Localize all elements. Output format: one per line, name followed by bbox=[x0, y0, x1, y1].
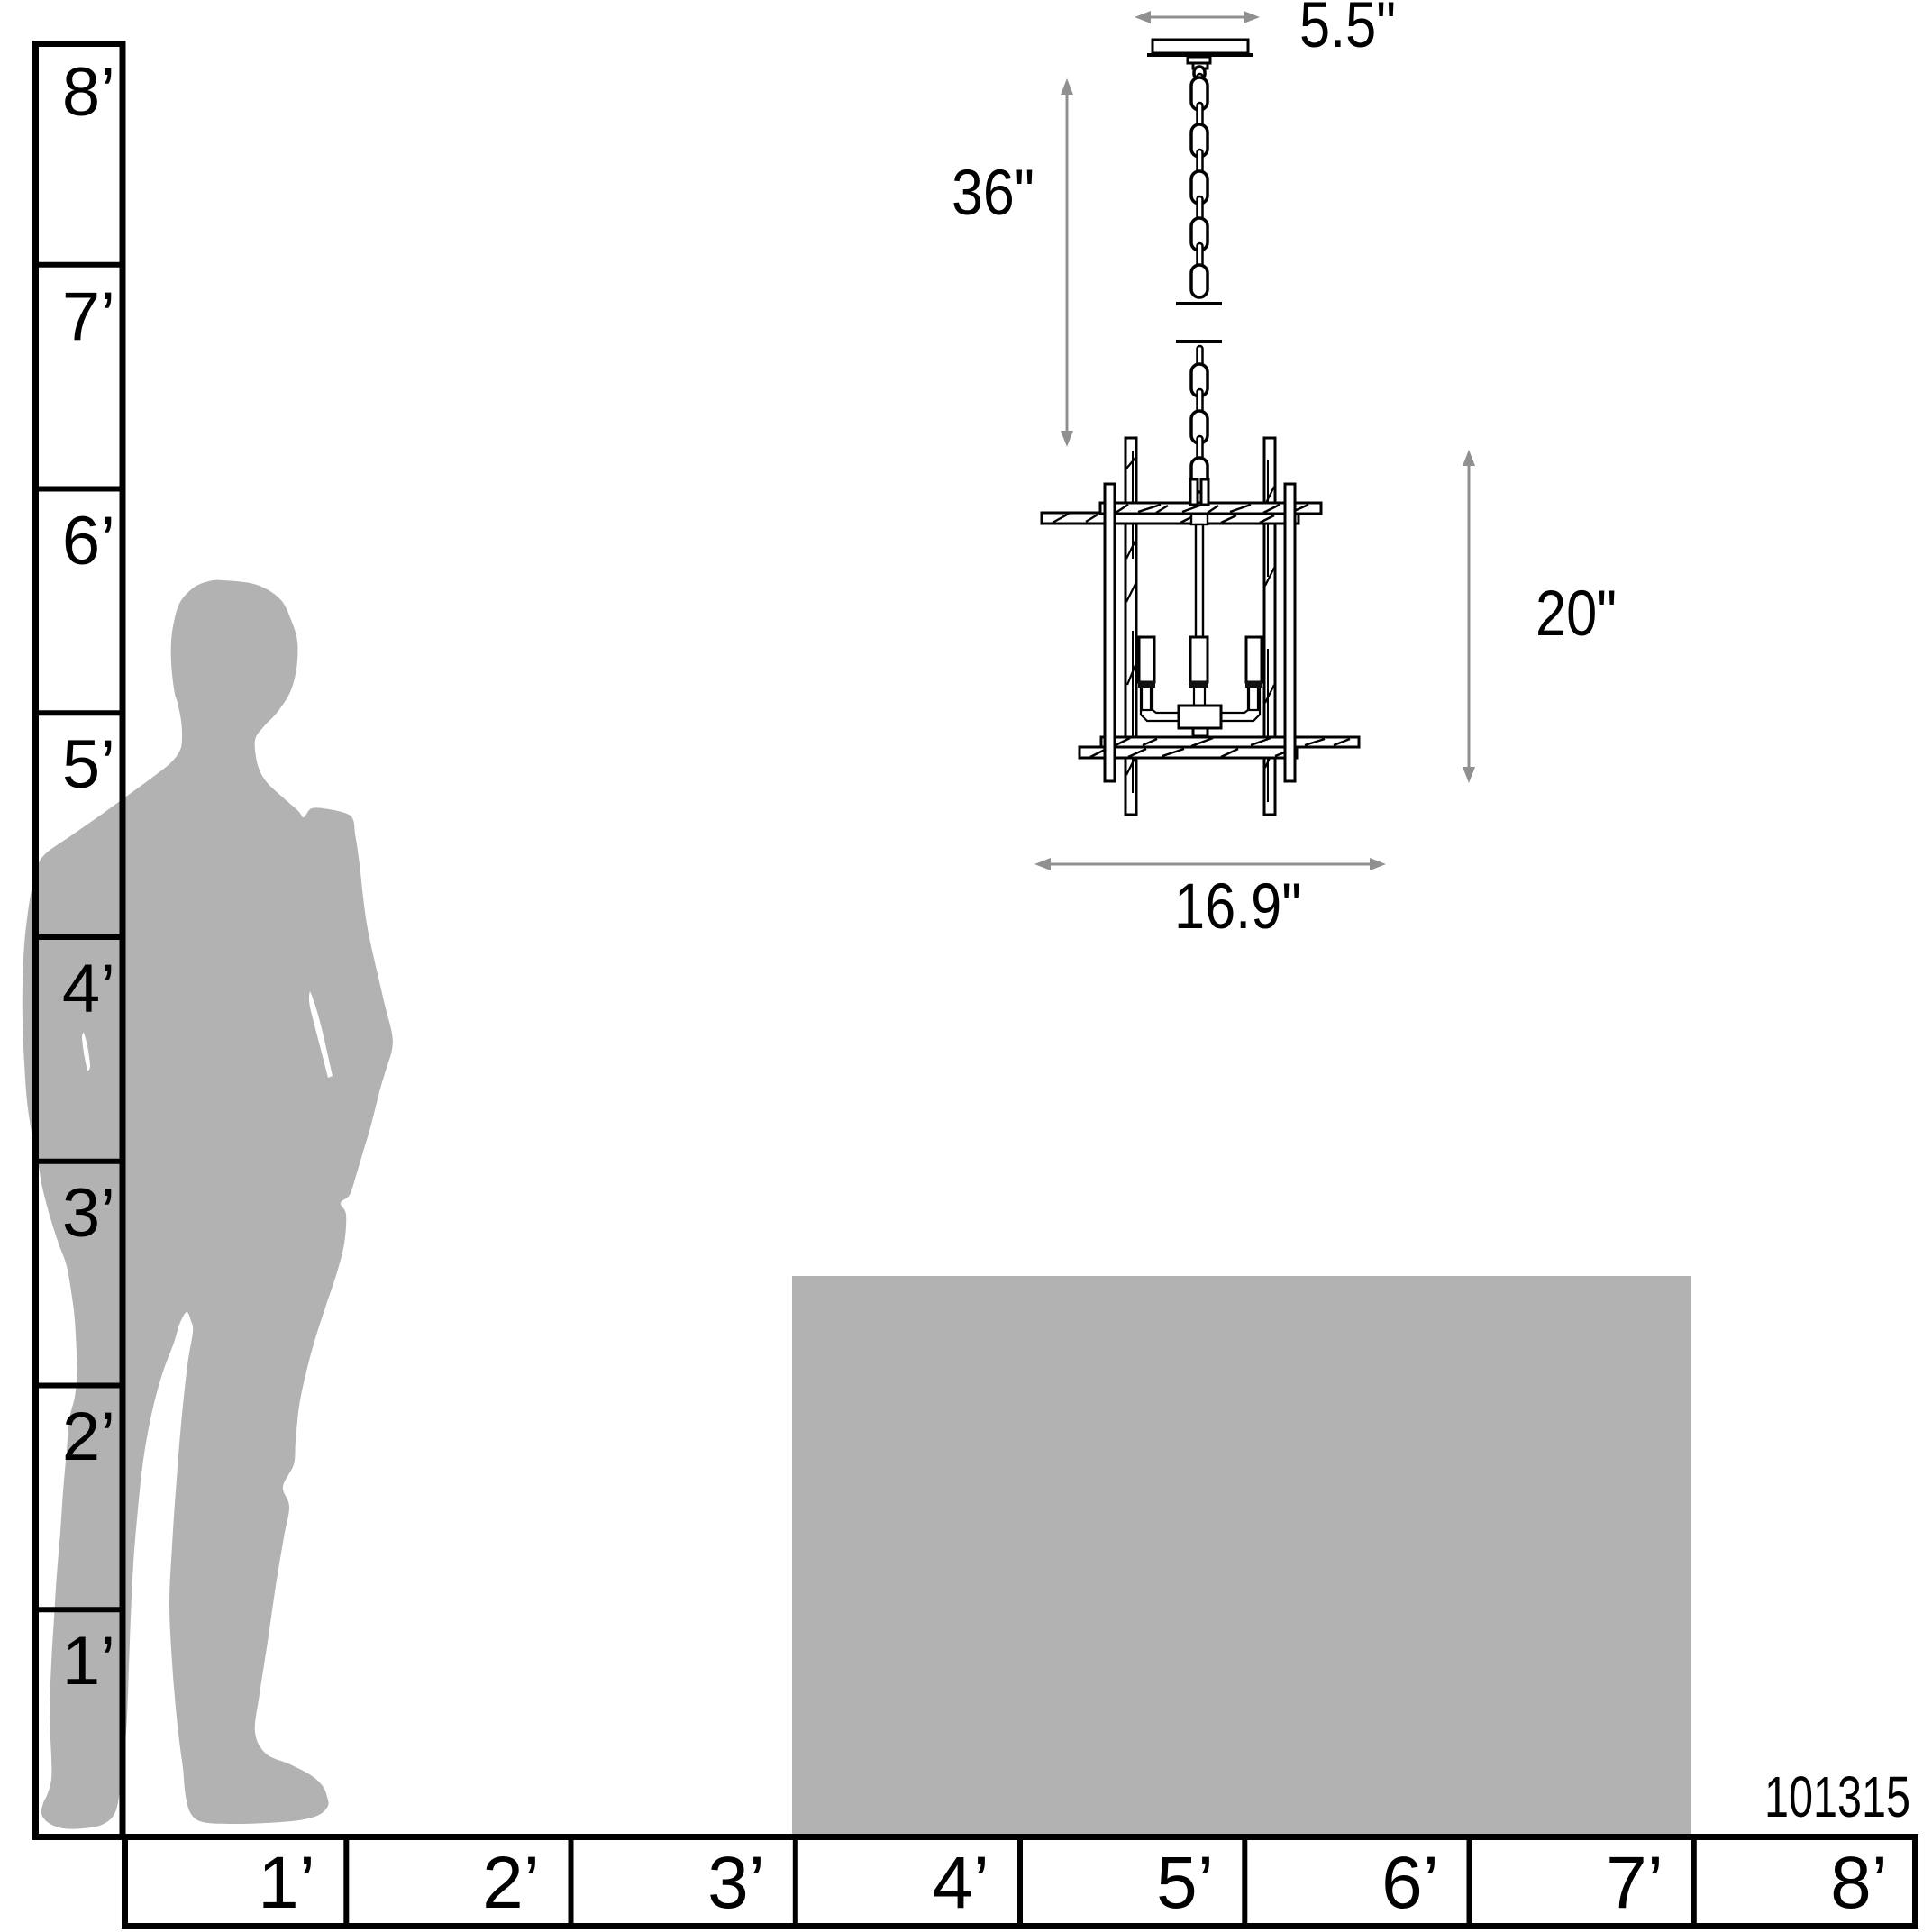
svg-text:4’: 4’ bbox=[932, 1842, 989, 1924]
svg-text:2’: 2’ bbox=[482, 1842, 540, 1924]
svg-text:7’: 7’ bbox=[1606, 1842, 1663, 1924]
svg-text:101315: 101315 bbox=[1764, 1764, 1910, 1829]
svg-text:5.5": 5.5" bbox=[1299, 0, 1396, 61]
svg-text:3’: 3’ bbox=[62, 1175, 115, 1252]
svg-text:6’: 6’ bbox=[62, 503, 115, 579]
svg-text:36": 36" bbox=[952, 158, 1034, 229]
svg-text:4’: 4’ bbox=[62, 951, 115, 1027]
svg-text:5’: 5’ bbox=[1156, 1842, 1214, 1924]
svg-text:5’: 5’ bbox=[62, 726, 115, 803]
svg-text:1’: 1’ bbox=[258, 1842, 315, 1924]
svg-text:7’: 7’ bbox=[62, 278, 115, 355]
svg-text:6’: 6’ bbox=[1381, 1842, 1439, 1924]
svg-text:3’: 3’ bbox=[707, 1842, 765, 1924]
svg-text:2’: 2’ bbox=[62, 1399, 115, 1475]
svg-text:16.9": 16.9" bbox=[1174, 871, 1301, 943]
svg-text:20": 20" bbox=[1536, 579, 1617, 650]
svg-text:8’: 8’ bbox=[1830, 1842, 1888, 1924]
svg-text:1’: 1’ bbox=[62, 1623, 115, 1700]
svg-text:8’: 8’ bbox=[62, 54, 115, 131]
